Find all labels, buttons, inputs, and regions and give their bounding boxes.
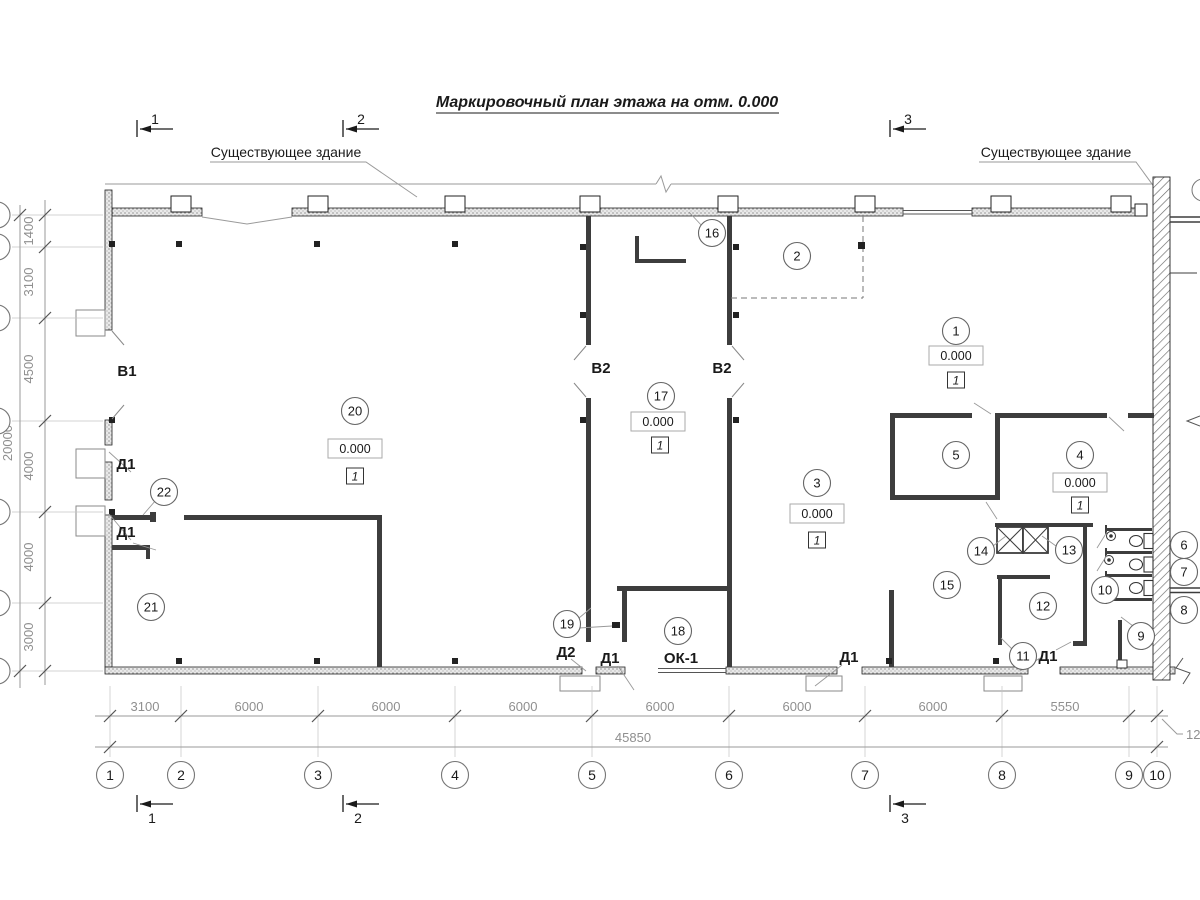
floor-type-marks: 1 1 1 1 1 <box>347 372 1089 548</box>
gate-label-v2-left: В2 <box>591 360 610 377</box>
room-12: 12 <box>1036 599 1050 614</box>
floor-type-room3: 1 <box>814 534 821 548</box>
dim-2-3: 6000 <box>235 699 264 714</box>
room-4: 4 <box>1076 448 1083 463</box>
dim-left-4500: 4500 <box>21 355 36 384</box>
room-10: 10 <box>1098 583 1112 598</box>
interior-walls <box>112 216 1154 667</box>
dim-left-4000b: 4000 <box>21 543 36 572</box>
room-9: 9 <box>1137 629 1144 644</box>
room-21: 21 <box>144 600 158 615</box>
page-title: Маркировочный план этажа на отм. 0.000 <box>436 94 778 111</box>
room-14: 14 <box>974 544 988 559</box>
toilet-fixtures <box>1130 534 1154 596</box>
room-13: 13 <box>1062 543 1076 558</box>
window-lines <box>658 211 972 673</box>
room-20: 20 <box>348 404 362 419</box>
section-mark-2-bottom: 2 <box>354 810 362 826</box>
room-6: 6 <box>1180 538 1187 553</box>
dim-4-5: 6000 <box>509 699 538 714</box>
existing-building-label-left: Существующее здание <box>210 144 417 197</box>
room-19: 19 <box>560 617 574 632</box>
room-7: 7 <box>1180 565 1187 580</box>
section-markers-top <box>137 120 926 137</box>
room-5: 5 <box>952 448 959 463</box>
elevation-room4: 0.000 <box>1064 476 1095 490</box>
dim-8-9: 5550 <box>1051 699 1080 714</box>
grid-bubbles-bottom <box>97 762 1171 789</box>
room-17: 17 <box>654 389 668 404</box>
room-1: 1 <box>952 324 959 339</box>
grid-axis-6: 6 <box>725 767 733 783</box>
door-label-d1-e: Д1 <box>1038 648 1057 665</box>
room-16: 16 <box>705 226 719 241</box>
room-3: 3 <box>813 476 820 491</box>
door-label-d1-b: Д1 <box>116 524 135 541</box>
dimension-values-left: 1400 3100 4500 4000 4000 3000 20000 <box>0 217 36 652</box>
door-label-d1-a: Д1 <box>116 456 135 473</box>
floor-plan-drawing: Маркировочный план этажа на отм. 0.000 С… <box>0 0 1200 900</box>
dim-total-bottom: 45850 <box>615 730 651 745</box>
dim-3-4: 6000 <box>372 699 401 714</box>
dim-7-8: 6000 <box>919 699 948 714</box>
room-11: 11 <box>1016 649 1030 664</box>
room-8: 8 <box>1180 603 1187 618</box>
edge-grid-bubble <box>1192 179 1200 201</box>
door-post <box>1117 660 1127 668</box>
gate-opening-marks <box>112 331 744 419</box>
floor-plan-page: Маркировочный план этажа на отм. 0.000 С… <box>0 0 1200 900</box>
grid-axis-2: 2 <box>177 767 185 783</box>
dim-left-3000: 3000 <box>21 623 36 652</box>
floor-type-room17: 1 <box>657 439 664 453</box>
section-mark-3-top: 3 <box>904 111 912 127</box>
door-porches <box>76 310 1022 691</box>
column-marks <box>109 241 999 664</box>
elevation-room1: 0.000 <box>940 349 971 363</box>
dimension-values-bottom: 3100 6000 6000 6000 6000 6000 6000 5550 … <box>131 699 1200 745</box>
grid-axis-3: 3 <box>314 767 322 783</box>
floor-type-room1: 1 <box>953 374 960 388</box>
grid-axis-8: 8 <box>998 767 1006 783</box>
existing-building-wall <box>1153 177 1170 680</box>
window-label-ok1: ОК-1 <box>664 650 698 667</box>
section-mark-3-bottom: 3 <box>901 810 909 826</box>
gate-label-v1: В1 <box>117 363 136 380</box>
dim-6-7: 6000 <box>783 699 812 714</box>
existing-building-text: Существующее здание <box>981 144 1132 160</box>
room-18: 18 <box>671 624 685 639</box>
grid-axis-10: 10 <box>1149 767 1165 783</box>
floor-type-room20: 1 <box>352 470 359 484</box>
gate-label-v2-right: В2 <box>712 360 731 377</box>
dim-left-4000a: 4000 <box>21 452 36 481</box>
shafts <box>997 527 1048 553</box>
grid-axis-4: 4 <box>451 767 459 783</box>
room-15: 15 <box>940 578 954 593</box>
section-mark-1-bottom: 1 <box>148 810 156 826</box>
section-markers-bottom <box>137 795 926 812</box>
existing-building-label-right: Существующее здание <box>979 144 1163 199</box>
grid-extension-lines-bottom <box>110 686 1157 757</box>
dim-left-1400: 1400 <box>21 217 36 246</box>
elevation-room20: 0.000 <box>339 442 370 456</box>
grid-axis-5: 5 <box>588 767 596 783</box>
dim-1-2: 3100 <box>131 699 160 714</box>
room-2: 2 <box>793 249 800 264</box>
grid-axis-1: 1 <box>106 767 114 783</box>
grid-axis-7: 7 <box>861 767 869 783</box>
section-mark-1-top: 1 <box>151 111 159 127</box>
dim-left-3100: 3100 <box>21 268 36 297</box>
dim-5-6: 6000 <box>646 699 675 714</box>
existing-building-text: Существующее здание <box>211 144 362 160</box>
grid-axis-9: 9 <box>1125 767 1133 783</box>
dim-9-10: 120 <box>1186 727 1200 742</box>
drawing-title: Маркировочный план этажа на отм. 0.000 <box>436 94 779 113</box>
floor-type-room4: 1 <box>1077 499 1084 513</box>
door-label-d1-c: Д1 <box>600 650 619 667</box>
room-22: 22 <box>157 485 171 500</box>
elevation-room17: 0.000 <box>642 415 673 429</box>
door-label-d1-d: Д1 <box>839 649 858 666</box>
door-label-d2: Д2 <box>556 644 575 661</box>
edge-arrow <box>1187 416 1200 426</box>
wall-break-symbol <box>1176 658 1190 684</box>
elevation-room3: 0.000 <box>801 507 832 521</box>
leader-lines <box>109 212 1133 690</box>
section-mark-2-top: 2 <box>357 111 365 127</box>
